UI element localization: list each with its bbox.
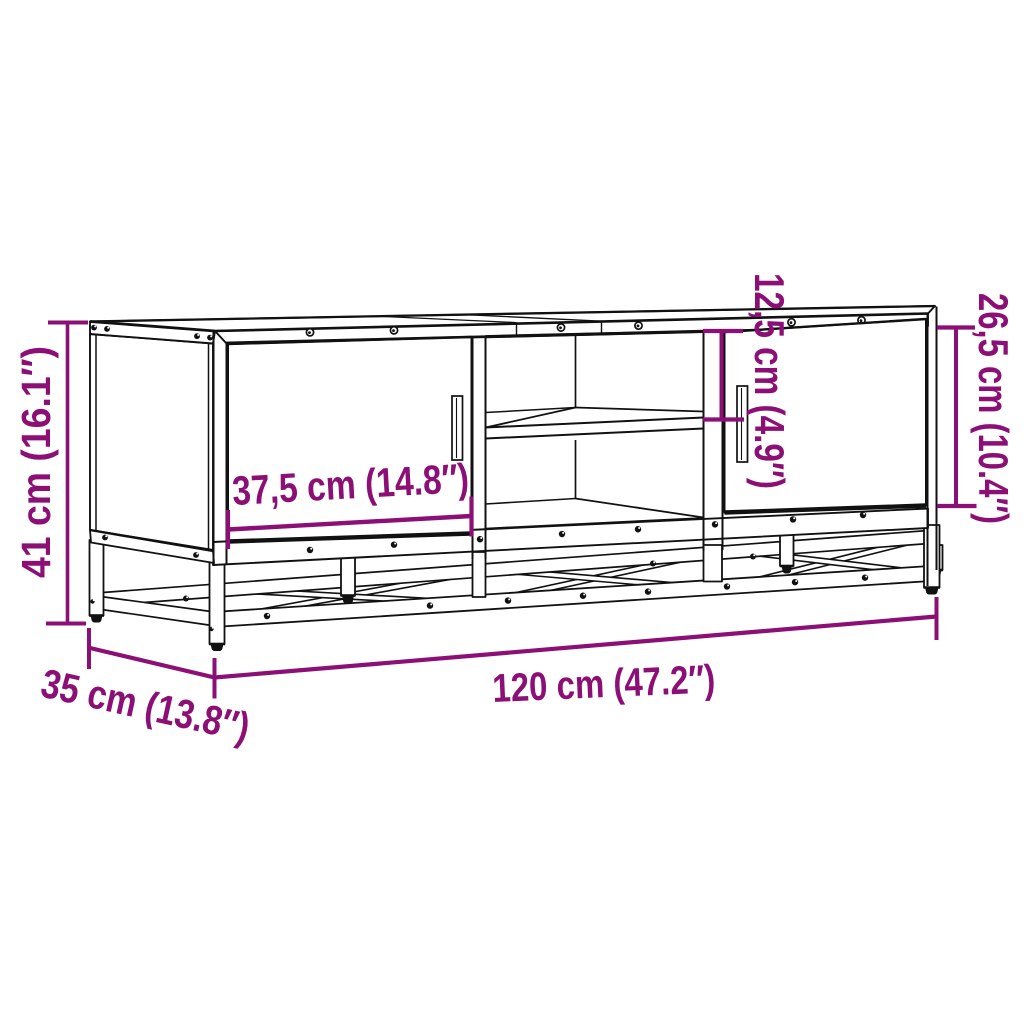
svg-text:12,5 cm (4.9″): 12,5 cm (4.9″) [746, 273, 793, 489]
svg-text:41 cm (16.1″): 41 cm (16.1″) [13, 346, 59, 578]
svg-text:26,5 cm (10.4″): 26,5 cm (10.4″) [970, 293, 1017, 524]
